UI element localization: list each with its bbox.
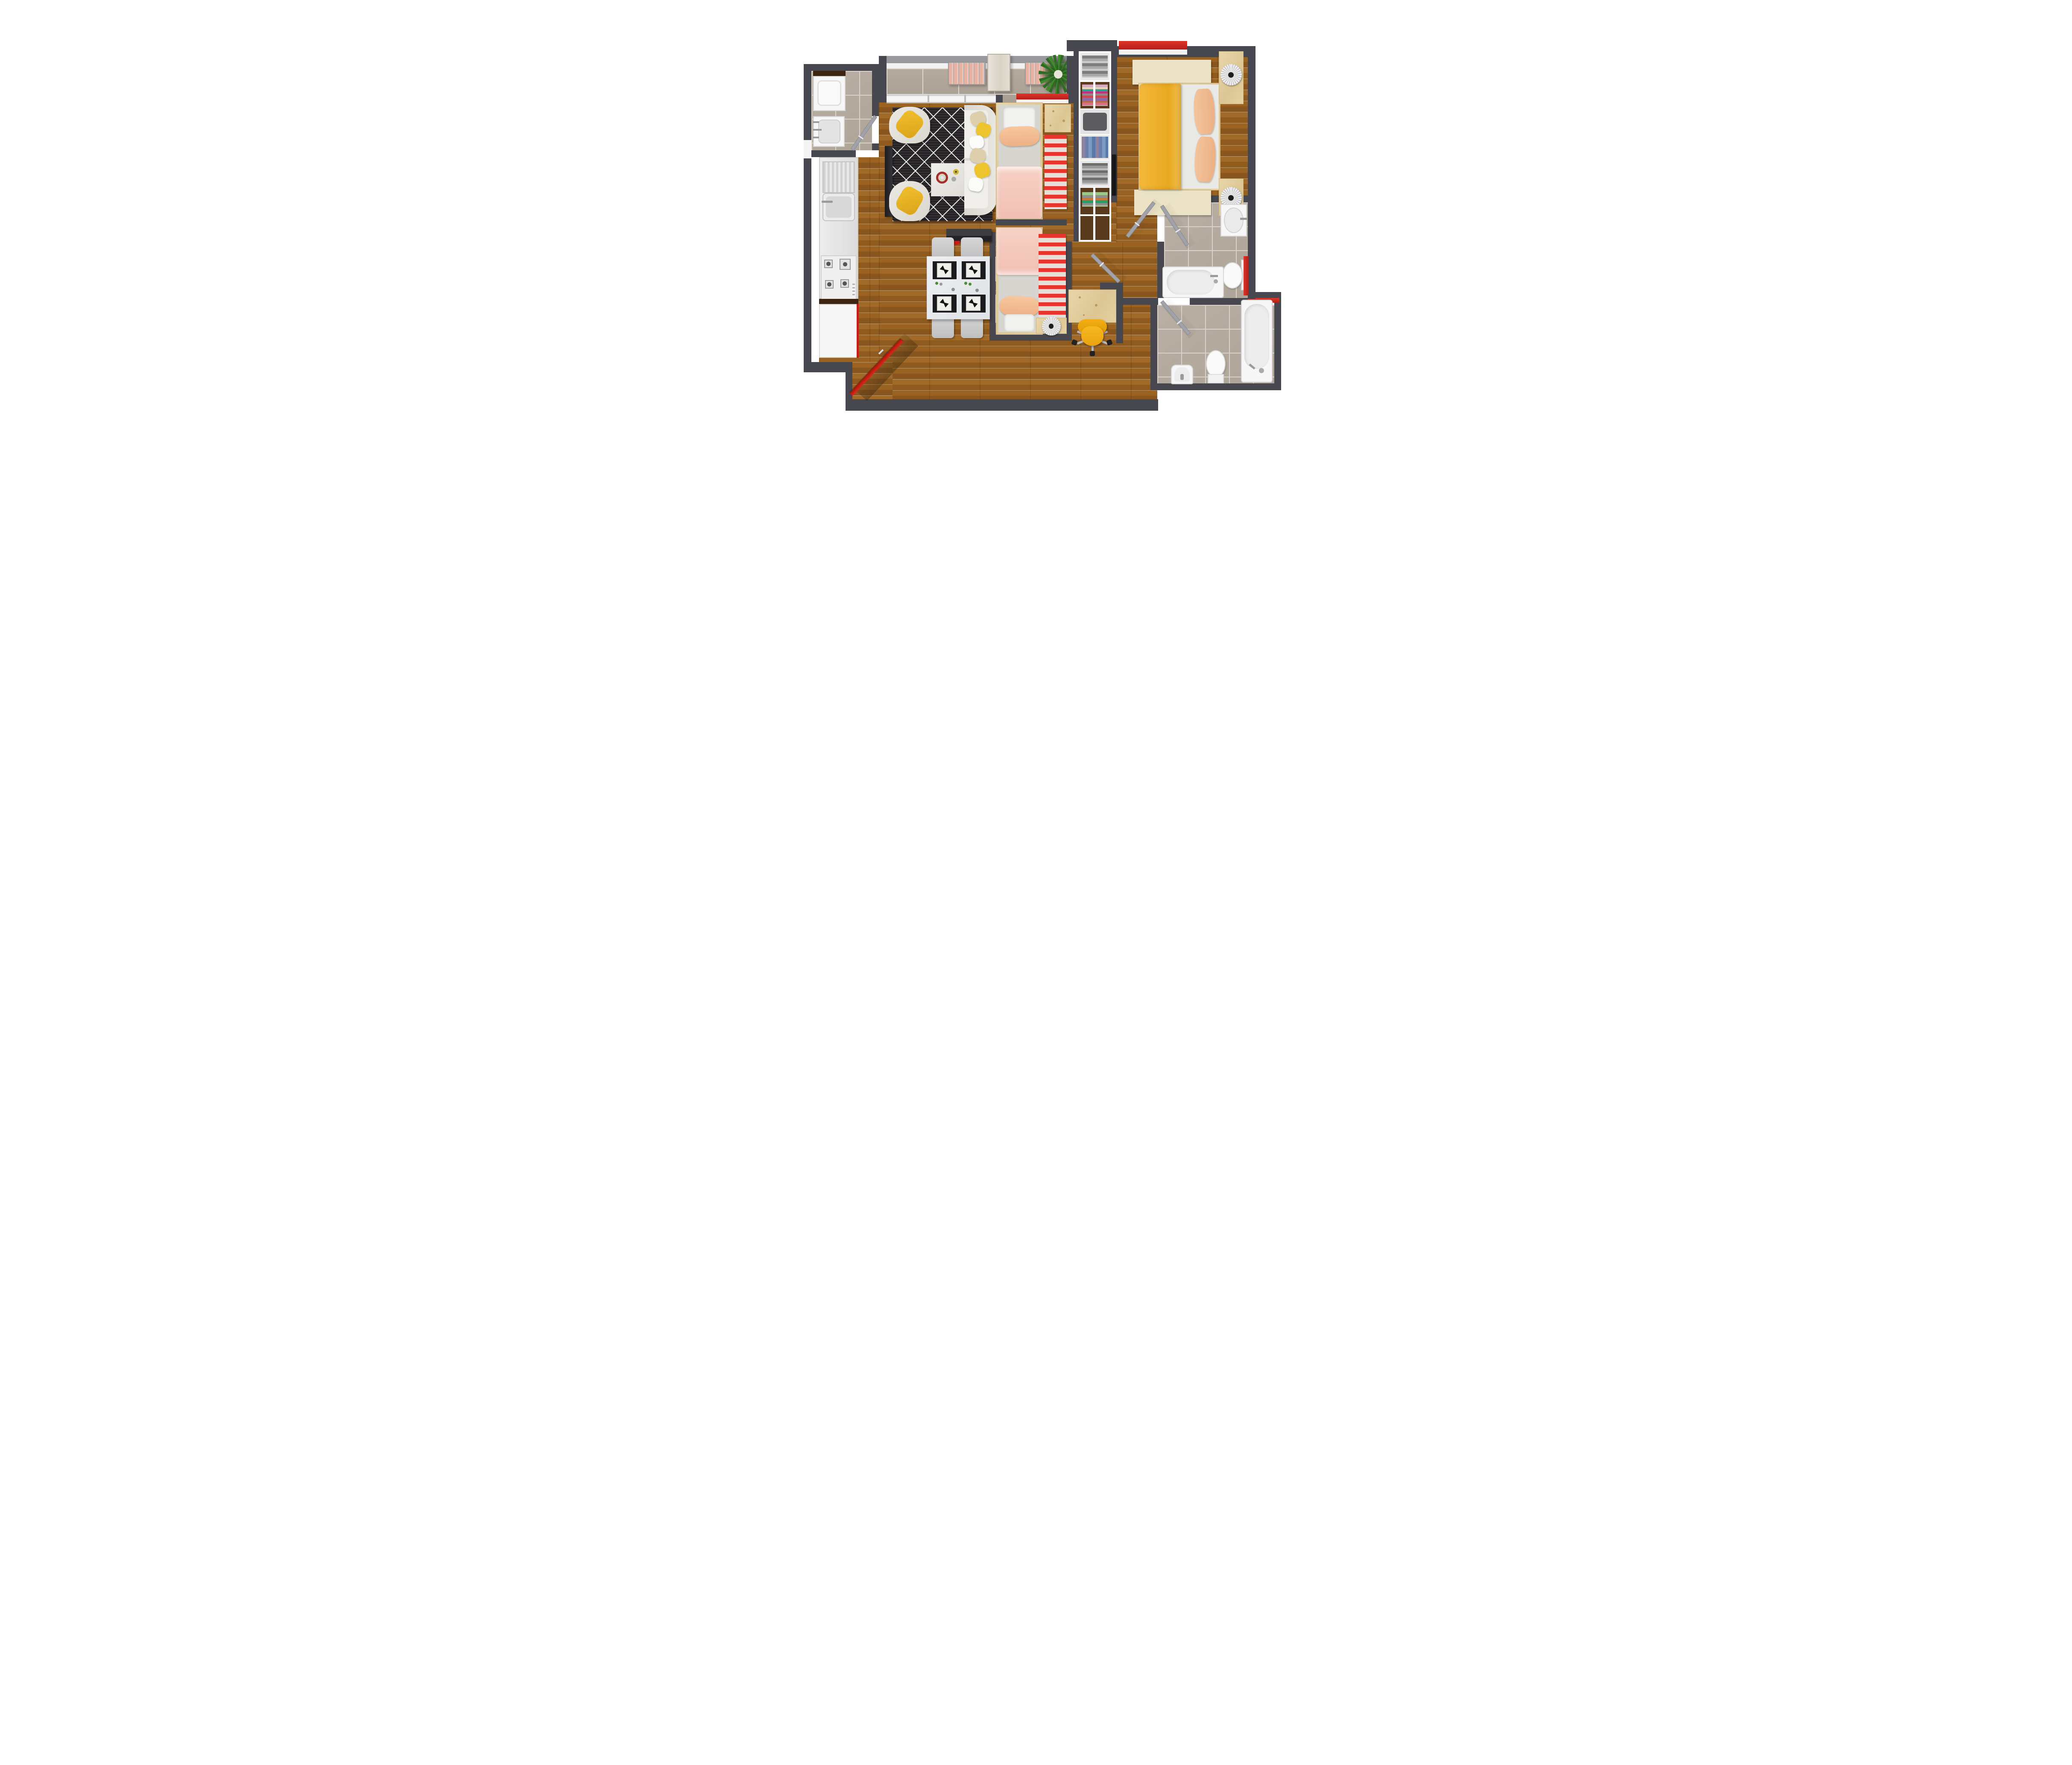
washing-machine-door xyxy=(817,80,841,106)
bedroom-wall-tv xyxy=(1112,155,1116,196)
coffee-table xyxy=(931,163,965,196)
laundry-faucet xyxy=(813,137,819,138)
wall-tub-nook-right xyxy=(1274,294,1281,390)
bath1-faucet xyxy=(1240,218,1247,220)
glass xyxy=(969,283,972,286)
kitchen-sink-basin xyxy=(826,196,852,218)
closet-divider xyxy=(1093,188,1095,214)
window-bench-sill-bedroom xyxy=(1119,50,1187,55)
wall-bed2-bottom xyxy=(989,334,1071,341)
table-deco-gold xyxy=(953,169,959,175)
bath1-tub-drain xyxy=(1214,279,1218,283)
red-window-bench-1 xyxy=(1016,94,1068,99)
dining-chair xyxy=(932,317,954,338)
bed2-peach-pillow xyxy=(999,295,1040,316)
laundry-faucet xyxy=(813,129,822,131)
bath2-tub-basin xyxy=(1244,304,1269,369)
wall-bath2-bottom xyxy=(1150,383,1281,390)
rolled-jeans xyxy=(1082,137,1108,158)
glass xyxy=(964,282,967,285)
desk-chair-seat xyxy=(1081,326,1103,346)
cooktop-knobs xyxy=(852,283,855,296)
floor-plan-canvas: Two-bedroom apartment floor plan, top-do… xyxy=(777,0,1295,441)
wall-top-closet xyxy=(1067,40,1117,51)
bed1-pink-blanket xyxy=(997,167,1042,219)
dining-chair xyxy=(961,237,983,259)
dining-chair xyxy=(932,237,954,259)
left-window xyxy=(804,140,811,158)
gray-clothes-stack xyxy=(1082,56,1108,78)
dining-chair xyxy=(961,317,983,338)
bath1-red-towel xyxy=(1244,256,1249,295)
closet-divider xyxy=(1093,216,1095,240)
glass xyxy=(939,283,942,286)
wall-dining-bed2 xyxy=(989,232,995,336)
bath1-tub-basin xyxy=(1167,270,1215,295)
bath2-bidet-faucet xyxy=(1180,374,1184,380)
wall-left-upper xyxy=(804,64,811,140)
bedroom-lamp-top xyxy=(1220,64,1242,85)
kitchen-base-cabinet xyxy=(819,304,858,358)
wall-bath1-right xyxy=(1248,202,1255,299)
glass xyxy=(951,288,955,291)
red-window-bench-bedroom xyxy=(1119,41,1187,50)
chair-caster xyxy=(1090,351,1095,356)
bed1-striped-rug xyxy=(1045,135,1067,209)
bath2-toilet-bowl xyxy=(1206,350,1226,377)
sofa-pillow-white xyxy=(969,135,985,149)
bedroom-rug-top xyxy=(1133,60,1211,85)
wall-alcove-divider xyxy=(996,219,1067,225)
bath2-toilet-base xyxy=(1208,374,1224,383)
kitchen-faucet xyxy=(822,201,833,203)
wall-bath2-left xyxy=(1150,305,1157,390)
bedroom-yellow-blanket xyxy=(1139,84,1181,190)
wall-bath-divider xyxy=(1190,298,1248,305)
wall-laundry-right xyxy=(872,64,879,116)
bed1-peach-pillow xyxy=(999,126,1040,146)
closet-divider xyxy=(1093,82,1095,108)
table-clock xyxy=(936,172,948,184)
wall-kitchen-bottom xyxy=(804,362,852,372)
wall-closet-left xyxy=(1074,51,1079,242)
bath1-toilet-bowl xyxy=(1222,262,1243,289)
bath2-tub-mixer xyxy=(1259,368,1264,373)
bed1-chest xyxy=(1045,104,1071,132)
window-mullion xyxy=(964,95,966,103)
bath1-sink xyxy=(1224,207,1244,233)
wall-bench-closet xyxy=(1068,94,1074,103)
wall-laundry-right-stub xyxy=(872,143,879,150)
plant-pot-center xyxy=(1054,70,1062,79)
balcony-chair-left xyxy=(948,62,986,85)
bed2-lamp xyxy=(1042,317,1061,336)
balcony-table xyxy=(987,54,1010,91)
gray-shirt xyxy=(1083,113,1107,131)
wall-laundry-top xyxy=(804,64,880,71)
bath1-tub-faucet xyxy=(1210,275,1218,277)
wall-entry-step xyxy=(846,362,852,401)
bedroom-pillow-1 xyxy=(1193,88,1215,134)
kitchen-drainboard xyxy=(822,161,855,193)
wall-left-lower xyxy=(804,158,811,372)
kitchen-cabinet-red-edge xyxy=(857,304,859,358)
wall-bedroom-right xyxy=(1248,46,1255,202)
wall-nook-right xyxy=(1116,283,1123,343)
window-mullion xyxy=(928,95,929,103)
bed2-pink-blanket xyxy=(997,228,1042,275)
desk xyxy=(1068,289,1116,323)
laundry-faucet xyxy=(813,121,819,123)
gray-clothes-stack-2 xyxy=(1082,163,1108,184)
living-window-band xyxy=(887,95,996,103)
table-deco-dish xyxy=(951,177,956,181)
glass xyxy=(975,289,979,292)
wall-laundry-bottom xyxy=(811,150,856,157)
kitchen-cabinet-top-edge xyxy=(819,299,858,304)
wall-bottom-main xyxy=(846,399,1158,411)
laundry-sink-basin xyxy=(818,120,840,143)
glass xyxy=(935,282,938,285)
laundry-shelf xyxy=(813,71,846,76)
wall-balcony-left xyxy=(879,56,887,102)
bedroom-pillow-2 xyxy=(1194,136,1216,182)
bed2-white-pillow xyxy=(1004,314,1034,331)
